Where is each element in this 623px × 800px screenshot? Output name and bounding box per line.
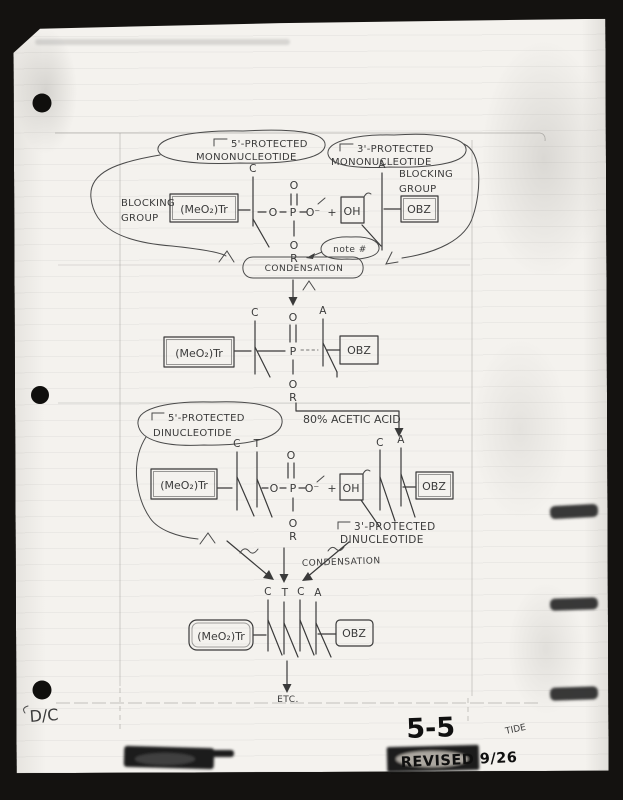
svg-text:3'-PROTECTED: 3'-PROTECTED [354,521,436,533]
squiggle-icon [240,549,258,553]
base-t: T [281,587,289,599]
tr-group-label: (MeO₂)Tr [160,479,208,492]
base-c: C [249,163,257,175]
svg-text:GROUP: GROUP [399,184,436,195]
caret-icon [386,252,398,264]
svg-text:GROUP: GROUP [121,213,158,224]
o-minus: O⁻ [305,482,320,495]
binder-marks [550,504,599,701]
structure-row1: C O O P O⁻ + OH A O R [239,159,400,265]
phosphorus: P [290,206,297,219]
obz-label: OBZ [422,480,446,493]
diagram-canvas: 5'-PROTECTED MONONUCLEOTIDE 3'-PROTECTED… [0,0,623,800]
scanned-page: 5'-PROTECTED MONONUCLEOTIDE 3'-PROTECTED… [0,0,623,800]
base-a: A [378,159,386,171]
svg-text:BLOCKING: BLOCKING [121,198,175,209]
oxygen: O [287,449,296,462]
bracket-icon [340,144,353,151]
svg-text:BLOCKING: BLOCKING [399,169,453,180]
condensation-bubble-1: CONDENSATION [243,257,363,290]
tr-box-row1: (MeO₂)Tr [170,194,238,222]
acetic-acid-arrow: 80% ACETIC ACID [296,403,404,437]
initials-label: D/C [29,705,59,726]
oh-label: OH [343,482,360,495]
base-c: C [297,586,305,598]
figure-number: 5-5 [406,712,456,745]
photocopy-streak [35,39,290,45]
label-dinucleotide: DINUCLEOTIDE [153,428,232,439]
etc-arrow: ETC. [277,661,299,705]
svg-text:DINUCLEOTIDE: DINUCLEOTIDE [340,534,424,546]
oxygen: O [290,239,299,252]
caret-icon [303,281,315,290]
condensation-arrows-2: CONDENSATION [227,541,381,583]
obz-label: OBZ [342,627,366,640]
structure-row2: C O P A O R [235,305,340,404]
blocking-group-label-left: BLOCKING GROUP [121,198,175,224]
bracket-icon [214,139,227,146]
oh-box-row3: OH [340,470,370,500]
side-note: TIDE [504,723,528,737]
blocking-group-label-right: BLOCKING GROUP [399,169,453,195]
obz-box-row4: OBZ [336,620,373,646]
tr-box-row4: (MeO₂)Tr [189,620,253,650]
base-t: T [253,438,261,450]
tr-group-label: (MeO₂)Tr [197,630,245,643]
tr-box-row3: (MeO₂)Tr [151,469,217,499]
tr-group-label: (MeO₂)Tr [175,347,223,360]
note-bubble: note # [306,237,379,259]
arrowhead-icon [306,253,315,259]
obz-label: OBZ [347,344,371,357]
label-5-protected: 5'-PROTECTED [168,413,245,424]
oxygen: O [269,206,278,219]
label-5-protected: 5'-PROTECTED [231,139,308,150]
obz-box-row3: OBZ [416,472,453,499]
oxygen: O [289,378,298,391]
base-a: A [314,587,322,599]
base-c: C [264,586,272,598]
note-label: note # [333,245,367,255]
redaction-smudge-left [124,746,234,769]
caret-icon [219,251,234,262]
base-a: A [319,305,327,317]
base-c: C [233,438,241,450]
caret-icon [200,533,215,544]
phosphorus: P [290,345,297,358]
base-a: A [397,434,405,446]
condensation-label: CONDENSATION [302,556,381,569]
plus-sign: + [327,206,336,219]
oxygen: O [270,482,279,495]
o-minus: O⁻ [306,206,321,219]
base-c: C [251,307,259,319]
oxygen: O [289,311,298,324]
plus-sign: + [327,482,336,495]
label-3-protected-dinucleotide: 3'-PROTECTED DINUCLEOTIDE [338,521,436,546]
r-group: R [289,391,297,404]
punch-hole-middle [31,386,49,404]
punch-hole-top [33,94,52,113]
label-3-protected: 3'-PROTECTED [357,144,434,155]
oxygen: O [289,517,298,530]
revised-stamp: REVISED 9/26 [387,745,518,772]
oh-label: OH [344,205,361,218]
acetic-acid-label: 80% ACETIC ACID [303,413,401,426]
bracket-icon [338,522,350,529]
tr-box-row2: (MeO₂)Tr [164,337,234,367]
bubble-5-protected-dinucleotide: 5'-PROTECTED DINUCLEOTIDE [136,402,282,544]
obz-box-row1: OBZ [401,196,438,222]
condensation-arrow-1 [289,280,298,306]
tr-group-label: (MeO₂)Tr [180,203,228,216]
base-c: C [376,437,384,449]
arrowhead-icon [289,297,298,306]
arrowhead-icon [280,574,289,583]
r-group: R [289,530,297,543]
punch-holes [31,94,52,700]
condensation-label: CONDENSATION [265,264,344,274]
label-mononucleotide: MONONUCLEOTIDE [196,152,297,163]
oh-box-row1: OH [341,193,371,223]
etc-label: ETC. [277,695,299,705]
initials-mark: D/C [24,705,60,726]
structure-row4: C T C A [254,586,336,657]
obz-box-row2: OBZ [340,336,378,364]
obz-label: OBZ [407,203,431,216]
oxygen: O [290,179,299,192]
arrowhead-icon [263,570,274,580]
punch-hole-bottom [33,681,52,700]
arrowhead-icon [283,684,292,693]
phosphorus: P [290,482,297,495]
bracket-icon [152,413,164,420]
